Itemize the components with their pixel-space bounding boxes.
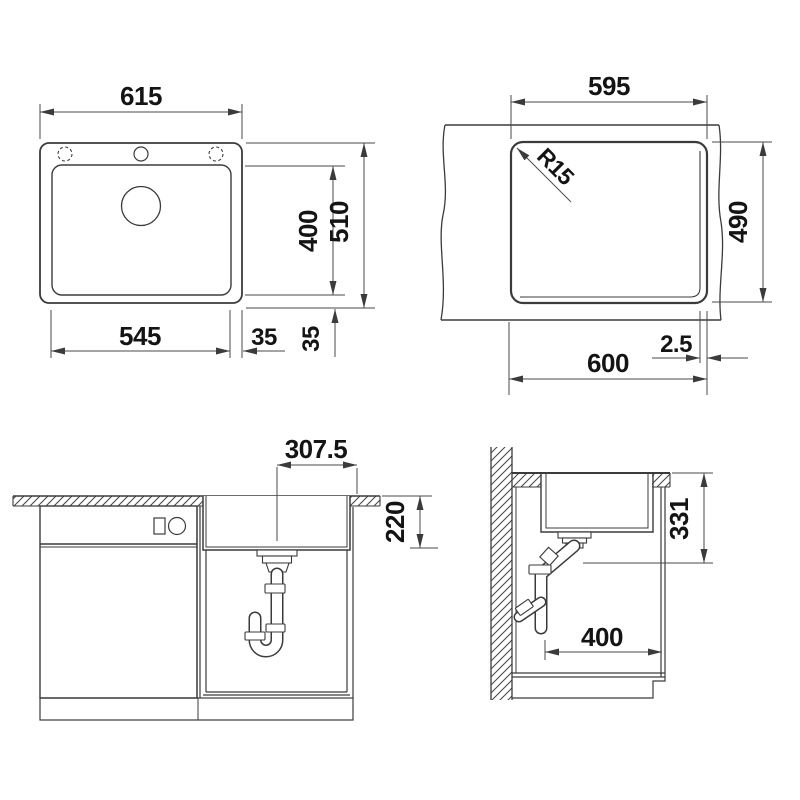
dim-bottom-margin: 35 [298, 326, 325, 352]
countertop-break-line-right [719, 125, 723, 320]
cabinet-plinth [512, 677, 665, 698]
countertop-hatch-left [13, 497, 203, 507]
dim-drain-offset: 307.5 [285, 434, 348, 464]
counter-hatch-back [513, 474, 542, 487]
view-countertop-cutout: R15 595 490 600 2.5 [441, 71, 772, 395]
counter-hatch-front [652, 474, 670, 487]
radius-label: R15 [532, 143, 580, 191]
control-knob-icon [169, 518, 186, 535]
drain-trap-side [515, 532, 591, 628]
dim-overall-width: 615 [120, 81, 162, 111]
dim-bowl-inner-depth: 220 [380, 501, 410, 543]
bowl-side-inner [546, 474, 648, 528]
dim-cutout-width-top: 595 [588, 71, 630, 101]
dim-cutout-width-bottom: 600 [587, 348, 629, 378]
dim-drain-outlet-height: 331 [664, 498, 694, 540]
countertop-hatch-right [350, 497, 380, 507]
dim-cutout-depth: 490 [723, 201, 753, 243]
technical-drawing-canvas: 615 545 35 400 510 35 R15 595 [0, 0, 800, 800]
view-side-section: 331 400 [491, 447, 713, 700]
dim-cabinet-width: 400 [581, 622, 623, 652]
view-front-section: 307.5 220 [13, 434, 438, 720]
wall-hatch [491, 447, 512, 700]
sink-installation-drawing: 615 545 35 400 510 35 R15 595 [0, 0, 800, 800]
left-cabinet [40, 506, 197, 698]
dim-overall-depth: 510 [324, 201, 354, 243]
faucet-hole-center-icon [134, 147, 148, 161]
dim-bowl-depth: 400 [293, 210, 323, 252]
dim-right-margin: 35 [251, 324, 277, 351]
cabinet-base [40, 698, 353, 720]
sink-outer-rim [40, 143, 242, 303]
dim-chamfer: 2.5 [660, 331, 692, 358]
countertop-break-line-left [441, 125, 445, 320]
drain-trap-front [245, 550, 297, 651]
sink-bowl-top [52, 165, 231, 295]
view-sink-top: 615 545 35 400 510 35 [40, 81, 375, 358]
faucet-hole-left-icon [58, 147, 72, 161]
dim-bowl-width: 545 [119, 321, 161, 351]
control-button-icon [154, 518, 165, 534]
faucet-hole-right-icon [209, 147, 223, 161]
bowl-side-outer [541, 474, 653, 532]
drain-hole-icon [122, 187, 161, 226]
